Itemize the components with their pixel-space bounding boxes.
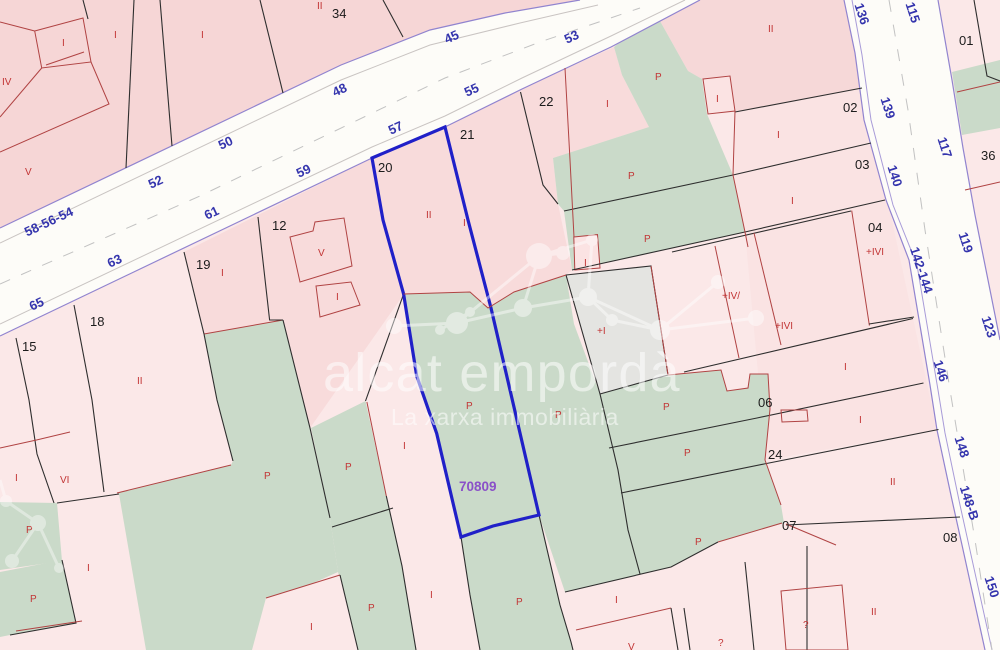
svg-text:34: 34 [332, 6, 346, 21]
svg-text:?: ? [718, 638, 724, 649]
svg-text:20: 20 [378, 160, 392, 175]
svg-text:La xarxa immobiliària: La xarxa immobiliària [391, 404, 619, 430]
svg-text:19: 19 [196, 257, 210, 272]
svg-text:IV: IV [2, 77, 12, 88]
svg-text:I: I [844, 362, 847, 373]
svg-text:I: I [15, 473, 18, 484]
svg-text:08: 08 [943, 530, 957, 545]
svg-text:I: I [87, 563, 90, 574]
svg-text:I: I [62, 38, 65, 49]
svg-text:22: 22 [539, 94, 553, 109]
svg-text:I: I [430, 590, 433, 601]
svg-text:04: 04 [868, 220, 882, 235]
svg-text:P: P [655, 72, 662, 83]
svg-text:P: P [695, 537, 702, 548]
svg-text:I: I [221, 268, 224, 279]
svg-text:70809: 70809 [459, 479, 497, 494]
svg-text:07: 07 [782, 518, 796, 533]
svg-text:+IVI: +IVI [775, 321, 793, 332]
svg-text:I: I [584, 258, 587, 269]
svg-text:03: 03 [855, 157, 869, 172]
svg-text:P: P [628, 171, 635, 182]
svg-text:+IVI: +IVI [866, 247, 884, 258]
svg-text:I: I [716, 94, 719, 105]
svg-text:I: I [201, 30, 204, 41]
svg-text:I: I [606, 99, 609, 110]
svg-text:P: P [368, 603, 375, 614]
svg-text:12: 12 [272, 218, 286, 233]
svg-text:P: P [516, 597, 523, 608]
svg-text:I: I [859, 415, 862, 426]
svg-text:21: 21 [460, 127, 474, 142]
svg-text:?: ? [803, 620, 809, 631]
svg-text:I: I [310, 622, 313, 633]
svg-text:15: 15 [22, 339, 36, 354]
svg-text:I: I [403, 441, 406, 452]
svg-text:24: 24 [768, 447, 782, 462]
svg-text:II: II [426, 210, 432, 221]
svg-text:+I: +I [597, 326, 606, 337]
svg-text:06: 06 [758, 395, 772, 410]
svg-text:P: P [684, 448, 691, 459]
svg-text:II: II [137, 376, 143, 387]
svg-text:V: V [628, 642, 635, 650]
svg-text:P: P [264, 471, 271, 482]
svg-text:P: P [644, 234, 651, 245]
svg-text:P: P [663, 402, 670, 413]
svg-text:V: V [25, 167, 32, 178]
svg-text:VI: VI [60, 475, 69, 486]
svg-text:02: 02 [843, 100, 857, 115]
svg-text:36: 36 [981, 148, 995, 163]
svg-text:I: I [791, 196, 794, 207]
svg-text:II: II [768, 24, 774, 35]
svg-text:V: V [318, 248, 325, 259]
svg-text:I: I [114, 30, 117, 41]
svg-text:I: I [336, 292, 339, 303]
svg-text:II: II [317, 1, 323, 12]
svg-text:01: 01 [959, 33, 973, 48]
svg-text:II: II [890, 477, 896, 488]
svg-text:P: P [30, 594, 37, 605]
svg-text:I: I [463, 218, 466, 229]
svg-text:alcat empordà: alcat empordà [323, 343, 681, 403]
svg-text:P: P [345, 462, 352, 473]
svg-text:I: I [615, 595, 618, 606]
svg-text:I: I [777, 130, 780, 141]
svg-text:+IV/: +IV/ [722, 291, 740, 302]
svg-text:18: 18 [90, 314, 104, 329]
svg-text:II: II [871, 607, 877, 618]
